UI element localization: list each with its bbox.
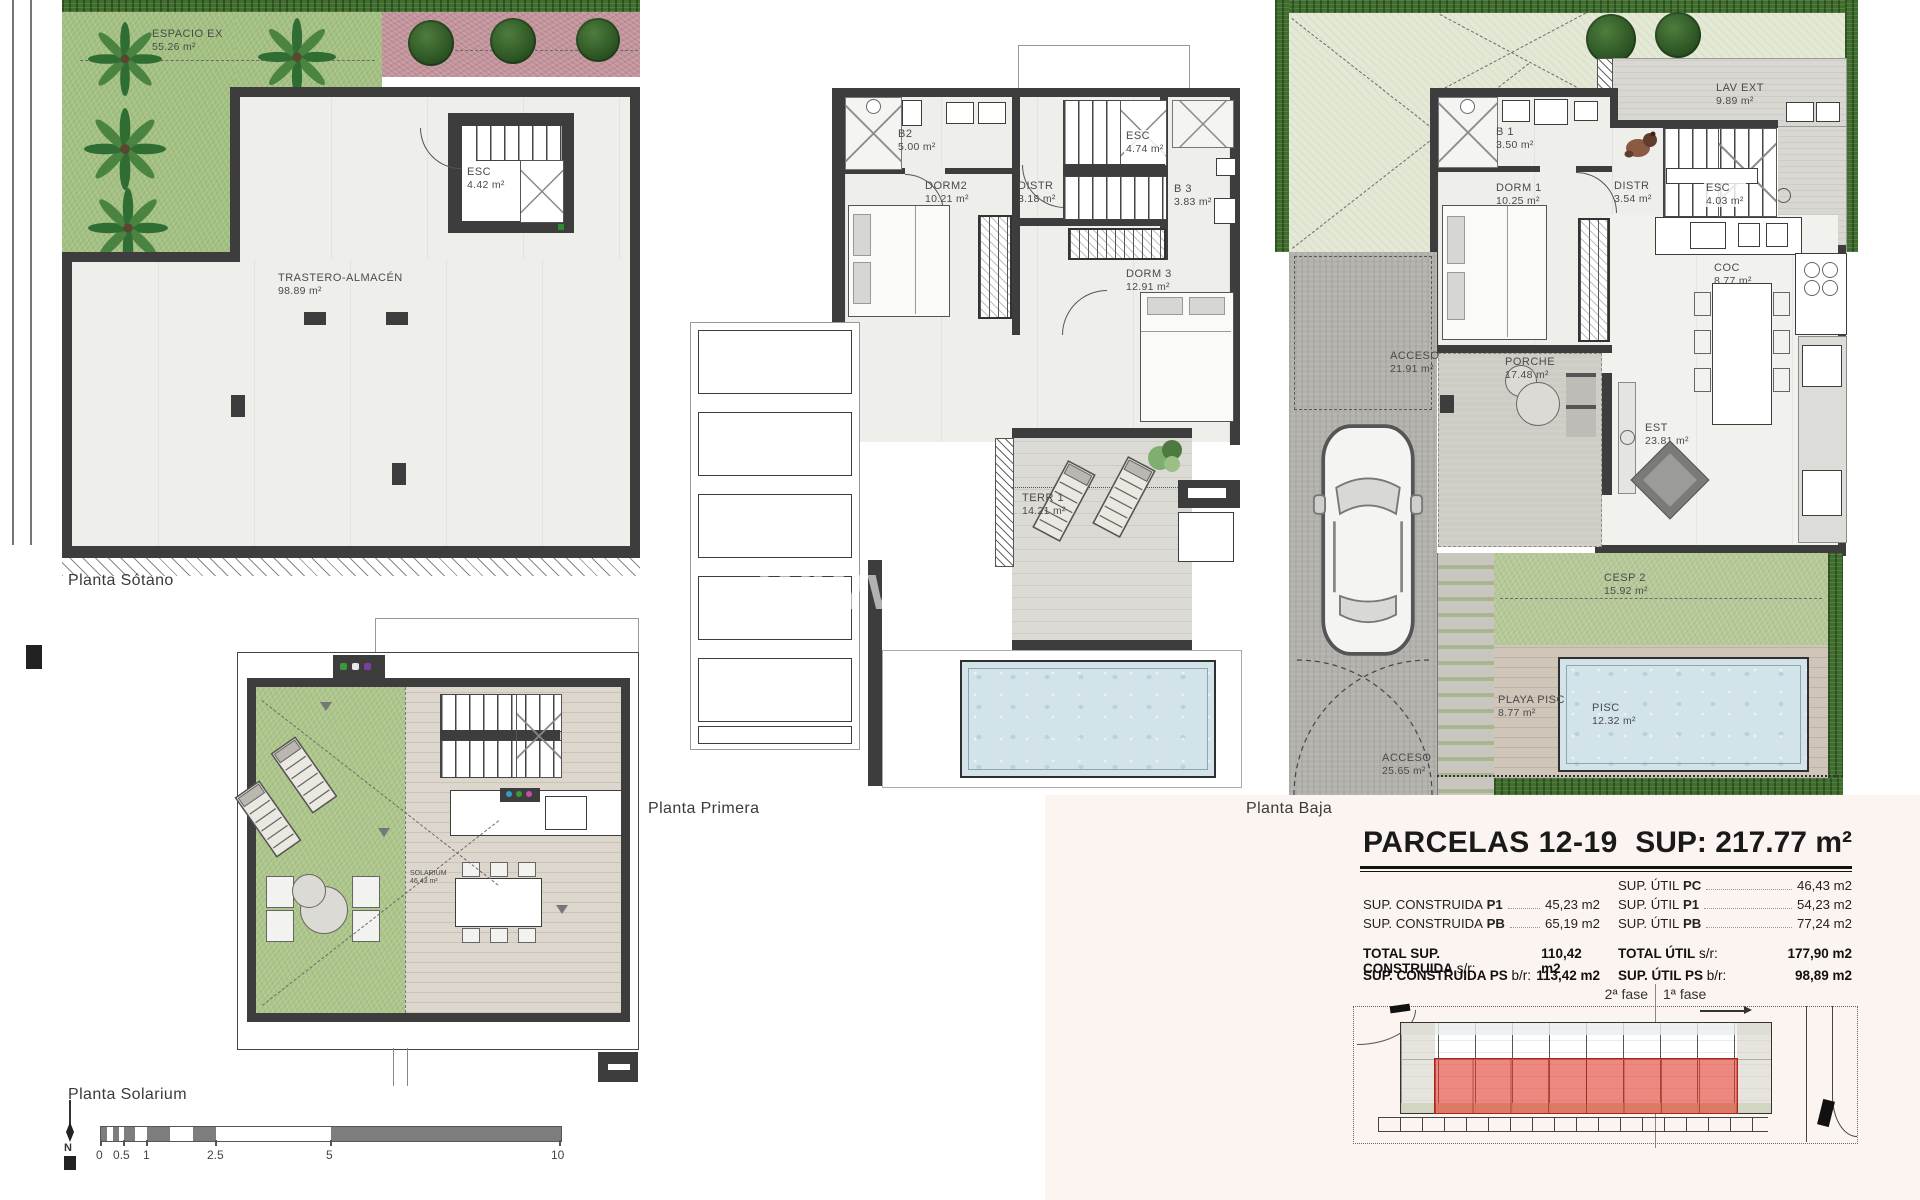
basement-floor	[62, 260, 640, 558]
bush-icon	[408, 20, 454, 66]
stub-line	[407, 1048, 408, 1086]
room-area: 3.50 m²	[1496, 139, 1534, 151]
room-area: 9.89 m²	[1716, 95, 1764, 107]
wardrobe	[1578, 218, 1610, 342]
roof-outline	[375, 618, 639, 656]
car-icon	[1312, 420, 1424, 660]
lounge-chair	[266, 910, 294, 942]
appliance-dot	[516, 791, 522, 797]
section-line	[12, 0, 14, 545]
basement-floor	[235, 87, 640, 260]
lawn-cesp2	[1494, 553, 1828, 645]
storage-box	[698, 658, 852, 722]
room-label-distr-baja: DISTR 3.54 m²	[1614, 180, 1652, 205]
sink	[1502, 100, 1530, 122]
chair	[490, 862, 508, 877]
room-label-pisc: PISC 12.32 m²	[1592, 702, 1636, 727]
slope-arrow	[320, 702, 332, 711]
site-road-line	[1832, 1006, 1833, 1096]
stair-cross	[516, 694, 562, 778]
shower-head	[1460, 99, 1475, 114]
scale-seg	[113, 1127, 119, 1141]
hedge	[1494, 778, 1843, 795]
room-area: 12.32 m²	[1592, 715, 1636, 727]
hedge	[62, 0, 640, 12]
room-area: 25.65 m²	[1382, 765, 1431, 777]
row-value: 177,90 m2	[1787, 946, 1852, 961]
round-table	[292, 874, 326, 908]
palm-tree-icon	[84, 108, 166, 190]
room-label-acceso2: ACCESO 25.65 m²	[1382, 752, 1431, 777]
row-value: 46,43 m2	[1797, 878, 1852, 893]
wall	[247, 678, 256, 1022]
scale-tick	[330, 1140, 332, 1146]
room-area: 4.42 m²	[467, 179, 505, 191]
hedge	[1828, 553, 1843, 795]
row-value: 45,23 m2	[1545, 897, 1600, 912]
garden-steps	[1437, 553, 1495, 795]
scale-tick	[123, 1140, 125, 1146]
lawn-dashed	[1500, 598, 1822, 599]
north-mark	[1700, 1010, 1746, 1012]
pool	[960, 660, 1216, 778]
wall	[621, 678, 630, 1022]
bush-icon	[1655, 12, 1701, 58]
fixture-symbol	[1776, 188, 1791, 203]
dog-icon	[1622, 128, 1660, 162]
stair-landing	[1063, 164, 1165, 176]
cooktop-burner	[1804, 280, 1820, 296]
room-name: DISTR	[1614, 180, 1652, 193]
room-name: ESC	[1706, 182, 1744, 195]
appliance	[1802, 470, 1842, 516]
door-gap	[1540, 165, 1576, 173]
room-name: ESC	[1126, 130, 1164, 143]
room-label-playa: PLAYA PISC 8.77 m²	[1498, 694, 1565, 719]
wall	[247, 678, 630, 687]
fase-2-label: 2ª fase	[1560, 986, 1648, 1002]
room-name: ESC	[467, 166, 505, 179]
room-name: EST	[1645, 422, 1689, 435]
site-road-line	[1806, 1006, 1807, 1142]
room-name: DORM2	[925, 180, 969, 193]
shower	[1172, 100, 1234, 148]
room-name: B 1	[1496, 126, 1534, 139]
wall	[630, 87, 640, 558]
chair	[1773, 368, 1790, 392]
dryer	[1816, 102, 1840, 122]
wall	[832, 88, 845, 335]
room-name: DORM 1	[1496, 182, 1542, 195]
rule	[1360, 866, 1852, 869]
parking-strip	[1378, 1117, 1768, 1132]
fase-1-label: 1ª fase	[1663, 986, 1706, 1002]
palm-tree-icon	[258, 18, 336, 96]
pillar	[392, 463, 406, 485]
room-area: 17.48 m²	[1505, 369, 1555, 381]
stair-treads	[1063, 176, 1167, 220]
cooktop-burner	[1822, 262, 1838, 278]
room-area: 3.83 m²	[1174, 196, 1212, 208]
lounge-chair	[266, 876, 294, 908]
wall	[247, 1013, 630, 1022]
dining-table	[455, 878, 542, 927]
chair	[1773, 292, 1790, 316]
scale-seg	[331, 1127, 561, 1141]
plan-title-baja: Planta Baja	[1246, 800, 1332, 818]
scale-label: 0	[96, 1148, 103, 1162]
dining-table	[1712, 283, 1772, 425]
kitchen-unit	[1766, 223, 1788, 247]
row-value: 65,19 m2	[1545, 916, 1600, 931]
summary-row: SUP. ÚTIL PC 46,43 m2	[1618, 878, 1852, 893]
toilet	[902, 100, 922, 126]
room-area: 3.54 m²	[1614, 193, 1652, 205]
hedge	[1285, 0, 1858, 13]
room-name: LAV EXT	[1716, 82, 1764, 95]
cooktop-burner	[1804, 262, 1820, 278]
room-label-dorm1: DORM 1 10.25 m²	[1496, 182, 1542, 207]
appliance-dot	[526, 791, 532, 797]
pool-inner-line	[968, 668, 1208, 770]
stub-line	[393, 1048, 394, 1086]
room-area: 55.26 m²	[152, 41, 223, 53]
room-label-b2: B2 5.00 m²	[898, 128, 936, 153]
watermark: www	[760, 550, 921, 624]
porch-table	[1516, 382, 1560, 426]
appliance-dot	[506, 791, 512, 797]
chair	[1694, 330, 1711, 354]
wall	[1012, 640, 1192, 650]
scale-tick	[100, 1140, 102, 1146]
floorplan-sheet: ESPACIO EX 55.26 m² TRASTERO-ALMACÉN 98.…	[0, 0, 1920, 1200]
dotted-leader	[1510, 926, 1540, 928]
row-label: TOTAL ÚTIL s/r:	[1618, 946, 1718, 961]
room-name: DORM 3	[1126, 268, 1172, 281]
appliance	[1802, 345, 1842, 387]
chair	[518, 928, 536, 943]
scale-label: 10	[551, 1148, 564, 1162]
wall	[1610, 120, 1778, 128]
section-line	[30, 0, 32, 545]
room-area: 46.43 m²	[410, 878, 447, 886]
room-name: B2	[898, 128, 936, 141]
bed	[1442, 205, 1547, 340]
scale-tick	[146, 1140, 148, 1146]
room-label-espacio: ESPACIO EX 55.26 m²	[152, 28, 223, 53]
room-name: PISC	[1592, 702, 1636, 715]
palm-tree-icon	[88, 22, 162, 96]
speaker	[1620, 430, 1635, 445]
dotted-leader	[1706, 888, 1792, 890]
chair	[462, 928, 480, 943]
north-letter: N	[64, 1142, 72, 1154]
chair	[490, 928, 508, 943]
void-outline	[1018, 45, 1190, 92]
room-area: 4.03 m²	[1706, 195, 1744, 207]
utility-slot	[608, 1064, 630, 1070]
storage-box	[698, 412, 852, 476]
room-area: 10.21 m²	[925, 193, 969, 205]
summary-total-row: SUP. ÚTIL PS b/r: 98,89 m2	[1618, 968, 1852, 983]
slope-arrow	[556, 905, 568, 914]
row-label: SUP. ÚTIL PC	[1618, 878, 1701, 893]
sink	[1216, 158, 1236, 176]
chair	[518, 862, 536, 877]
driveway-dashed	[1294, 256, 1432, 410]
row-value: 113,42 m2	[1536, 968, 1600, 983]
room-area: 8.77 m²	[1498, 707, 1565, 719]
chair	[1694, 368, 1711, 392]
room-label-terr1: TERR 1 14.21 m²	[1022, 492, 1066, 517]
room-label-b1: B 1 3.50 m²	[1496, 126, 1534, 151]
wall	[1430, 88, 1618, 97]
plan-title-sotano: Planta Sótano	[68, 572, 174, 590]
scale-label: 1	[143, 1148, 150, 1162]
scale-label: 0.5	[113, 1148, 130, 1162]
room-label-dorm2: DORM2 10.21 m²	[925, 180, 969, 205]
room-label-trastero: TRASTERO-ALMACÉN 98.89 m²	[278, 272, 403, 297]
kitchen-sink	[1690, 222, 1726, 249]
wall	[832, 88, 1240, 97]
bush-icon	[1586, 14, 1636, 64]
storage-box	[698, 494, 852, 558]
wall	[1430, 345, 1612, 353]
wall	[1012, 97, 1020, 335]
wall	[230, 87, 640, 97]
room-label-solarium: SOLARIUM 46.43 m²	[410, 870, 447, 887]
room-name: B 3	[1174, 183, 1212, 196]
rule	[1360, 871, 1852, 872]
sink	[978, 102, 1006, 124]
row-label: SUP. CONSTRUIDA PS b/r:	[1363, 968, 1531, 983]
row-label: SUP. CONSTRUIDA P1	[1363, 897, 1503, 912]
wall	[62, 252, 72, 558]
row-label: SUP. CONSTRUIDA PB	[1363, 916, 1505, 931]
summary-total-row: SUP. CONSTRUIDA PS b/r: 113,42 m2	[1363, 968, 1600, 983]
summary-total-row: TOTAL ÚTIL s/r: 177,90 m2	[1618, 946, 1852, 961]
kitchen-wall-unit	[1795, 253, 1847, 335]
summary-title: PARCELAS 12-19	[1363, 826, 1618, 860]
zone-divider-dashed	[405, 687, 406, 1013]
room-label-esc1: ESC 4.74 m²	[1124, 130, 1166, 155]
storage-box	[698, 330, 852, 394]
row-value: 54,23 m2	[1797, 897, 1852, 912]
row-value: 77,24 m2	[1797, 916, 1852, 931]
room-label-porche: PORCHE 17.48 m²	[1505, 356, 1555, 381]
planter-slot	[1188, 488, 1226, 498]
room-name: ESPACIO EX	[152, 28, 223, 41]
room-label-b3: B 3 3.83 m²	[1174, 183, 1212, 208]
washer	[1786, 102, 1814, 122]
scale-seg	[101, 1127, 107, 1141]
hedge	[1275, 0, 1289, 252]
row-label: SUP. ÚTIL P1	[1618, 897, 1699, 912]
pillar	[304, 312, 326, 325]
red-highlight-parcelas	[1434, 1058, 1738, 1114]
room-name: ACCESO	[1390, 350, 1439, 363]
lounge-chair	[352, 876, 380, 908]
summary-row: SUP. ÚTIL P1 54,23 m2	[1618, 897, 1852, 912]
toilet	[1214, 198, 1236, 224]
summary-sup-total: SUP: 217.77 m²	[1600, 826, 1852, 860]
pillar	[1440, 395, 1454, 413]
row-value: 98,89 m2	[1795, 968, 1852, 983]
bbq-dot	[364, 663, 371, 670]
wall-hatched	[995, 438, 1014, 567]
row-label: SUP. ÚTIL PB	[1618, 916, 1701, 931]
scale-seg	[124, 1127, 135, 1141]
dotted-leader	[1704, 907, 1792, 909]
room-name: PORCHE	[1505, 356, 1555, 369]
bbq-dot	[352, 663, 359, 670]
level-marker	[558, 224, 564, 230]
fence-dotted	[1437, 775, 1843, 777]
room-name: CESP 2	[1604, 572, 1648, 585]
summary-row: SUP. ÚTIL PB 77,24 m2	[1618, 916, 1852, 931]
porch-bench	[1566, 405, 1596, 437]
summary-row: SUP. CONSTRUIDA PB 65,19 m2	[1363, 916, 1600, 931]
room-name: TRASTERO-ALMACÉN	[278, 272, 403, 285]
cooktop-burner	[1822, 280, 1838, 296]
stair-treads	[1063, 100, 1122, 166]
plant-icon	[1148, 440, 1184, 476]
bed	[1140, 292, 1234, 422]
room-area: 4.74 m²	[1126, 143, 1164, 155]
room-area: 15.92 m²	[1604, 585, 1648, 597]
room-label-lavext: LAV EXT 9.89 m²	[1716, 82, 1764, 107]
scale-label: 2.5	[207, 1148, 224, 1162]
bush-icon	[490, 18, 536, 64]
bed	[848, 205, 950, 317]
wall	[230, 87, 240, 262]
garden	[1289, 13, 1845, 58]
scale-label: 5	[326, 1148, 333, 1162]
wall	[62, 546, 640, 558]
wall	[1012, 428, 1192, 438]
room-area: 21.91 m²	[1390, 363, 1439, 375]
slope-arrow	[378, 828, 390, 837]
wall	[62, 252, 240, 262]
vanity	[1534, 99, 1568, 125]
bush-icon	[576, 18, 620, 62]
north-mark-head	[1744, 1006, 1752, 1014]
sink	[545, 796, 587, 830]
room-area: 14.21 m²	[1022, 505, 1066, 517]
room-name: COC	[1714, 262, 1752, 275]
storage-box	[698, 726, 852, 744]
toilet	[1574, 101, 1598, 121]
kitchen-hob	[1738, 223, 1760, 247]
shelf	[1178, 512, 1234, 562]
section-marker	[26, 645, 42, 669]
bbq-dot	[340, 663, 347, 670]
scale-tick	[215, 1140, 217, 1146]
dotted-leader	[1706, 926, 1792, 928]
scale-tick	[559, 1140, 561, 1146]
shower-head	[866, 99, 881, 114]
scale-seg	[147, 1127, 170, 1141]
chair	[1773, 330, 1790, 354]
stair-treads	[476, 126, 562, 161]
room-label-acceso: ACCESO 21.91 m²	[1390, 350, 1439, 375]
room-area: 98.89 m²	[278, 285, 403, 297]
porch-bench	[1566, 373, 1596, 405]
wardrobe	[1068, 228, 1166, 260]
room-name: PLAYA PISC	[1498, 694, 1565, 707]
plan-title-primera: Planta Primera	[648, 800, 759, 818]
room-name: SOLARIUM	[410, 870, 447, 878]
room-name: ACCESO	[1382, 752, 1431, 765]
room-area: 5.00 m²	[898, 141, 936, 153]
room-label-esc-sotano: ESC 4.42 m²	[467, 166, 505, 191]
room-label-cesp2: CESP 2 15.92 m²	[1604, 572, 1648, 597]
room-name: TERR 1	[1022, 492, 1066, 505]
wardrobe	[978, 215, 1012, 319]
stair-flight-cross	[520, 160, 564, 223]
room-label-esc-baja: ESC 4.03 m²	[1704, 182, 1746, 207]
scale-seg	[193, 1127, 216, 1141]
setback-dashed	[1012, 487, 1192, 488]
pillar	[231, 395, 245, 417]
room-label-dorm3: DORM 3 12.91 m²	[1126, 268, 1172, 293]
north-arrow-icon: N	[58, 1100, 88, 1172]
dotted-leader	[1508, 907, 1540, 909]
row-label: SUP. ÚTIL PS b/r:	[1618, 968, 1726, 983]
summary-row: SUP. CONSTRUIDA P1 45,23 m2	[1363, 897, 1600, 912]
pillar	[386, 312, 408, 325]
sink	[946, 102, 974, 124]
chair	[1694, 292, 1711, 316]
